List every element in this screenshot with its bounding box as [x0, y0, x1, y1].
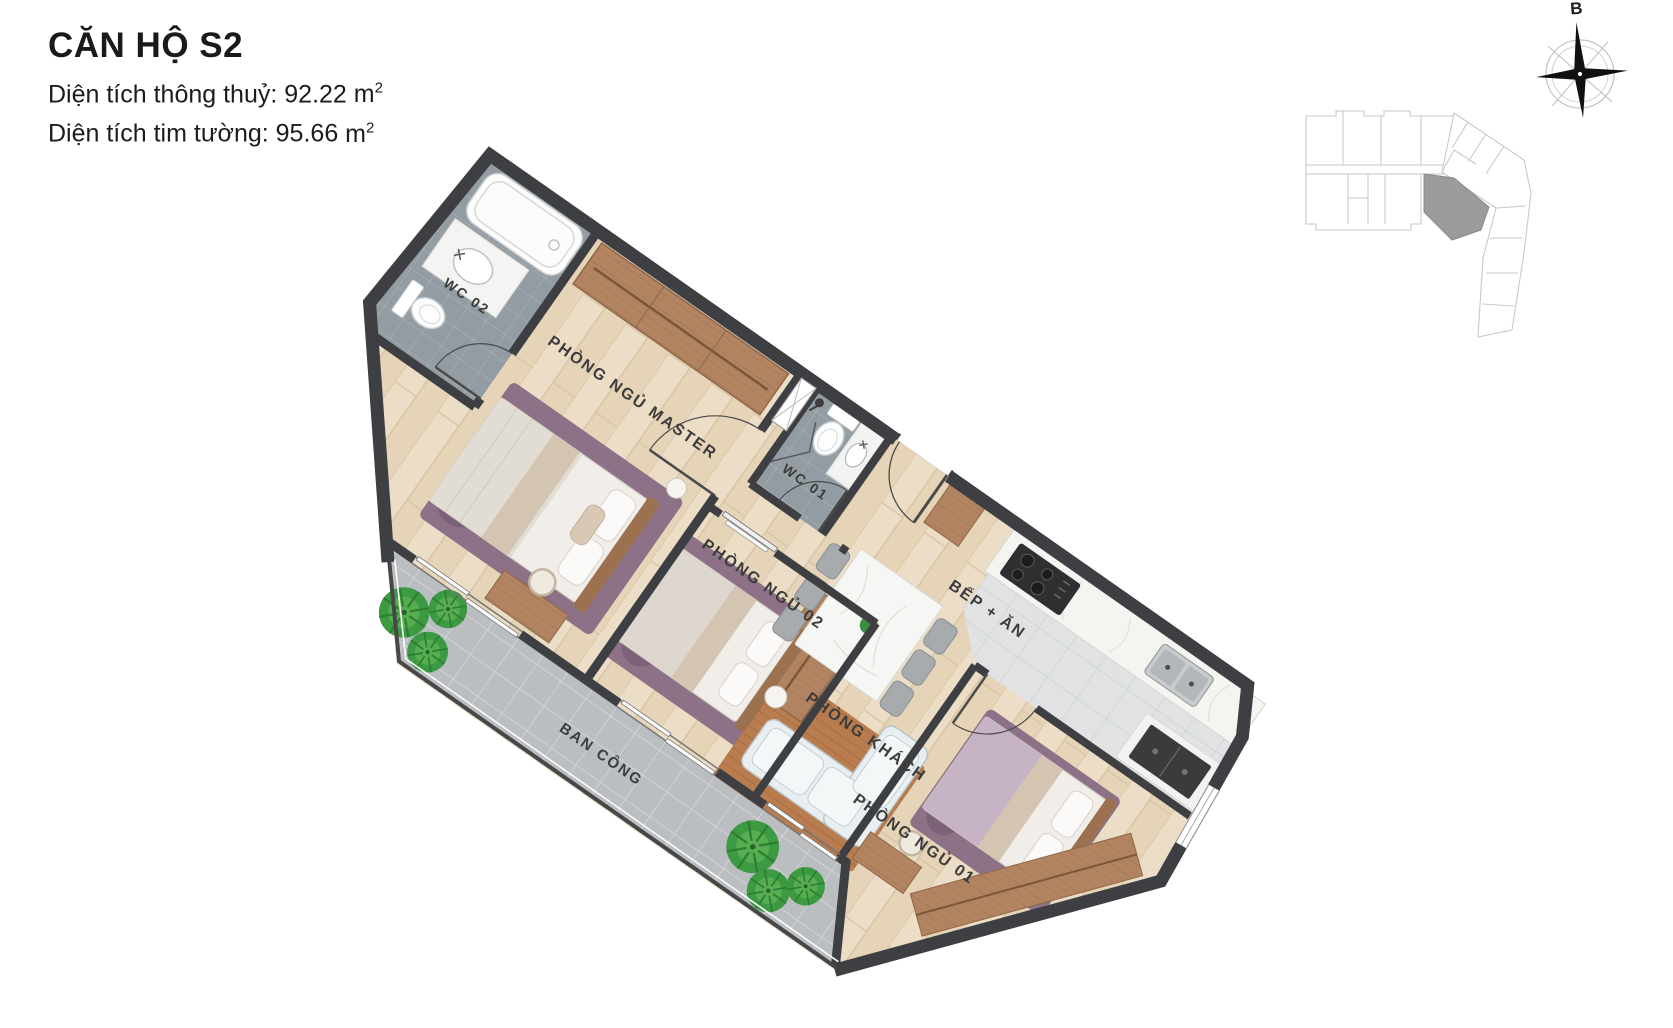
- floorplan: WC 02 PHÒNG NGỦ MASTER WC 01 PHÒNG NGỦ 0…: [0, 0, 1673, 1028]
